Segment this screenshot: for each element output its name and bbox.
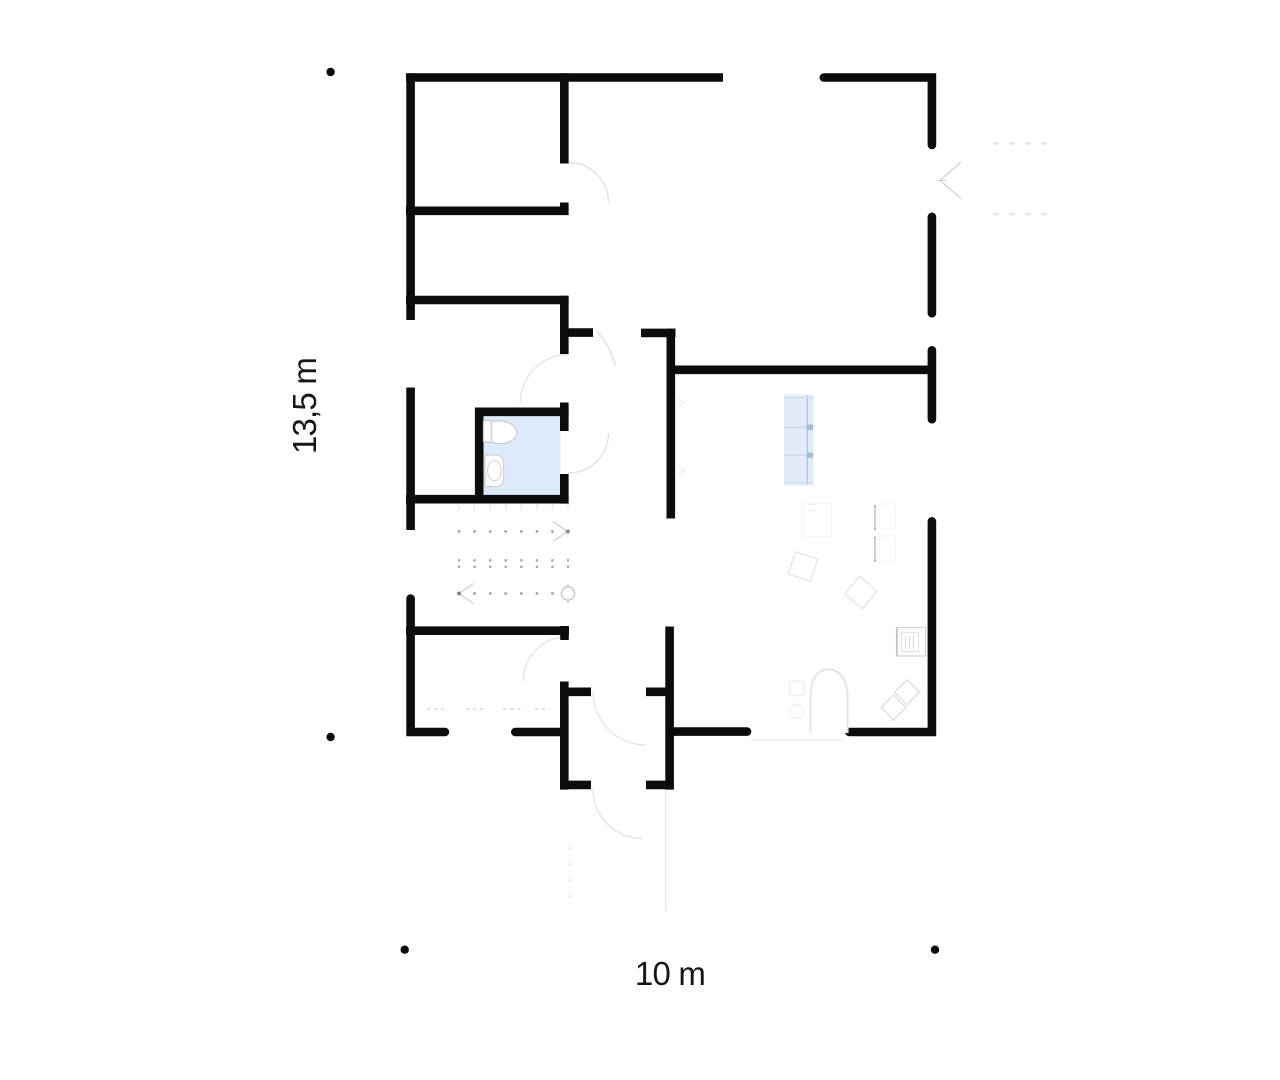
- svg-text:13,5 m: 13,5 m: [286, 358, 323, 454]
- svg-text:10 m: 10 m: [635, 955, 705, 992]
